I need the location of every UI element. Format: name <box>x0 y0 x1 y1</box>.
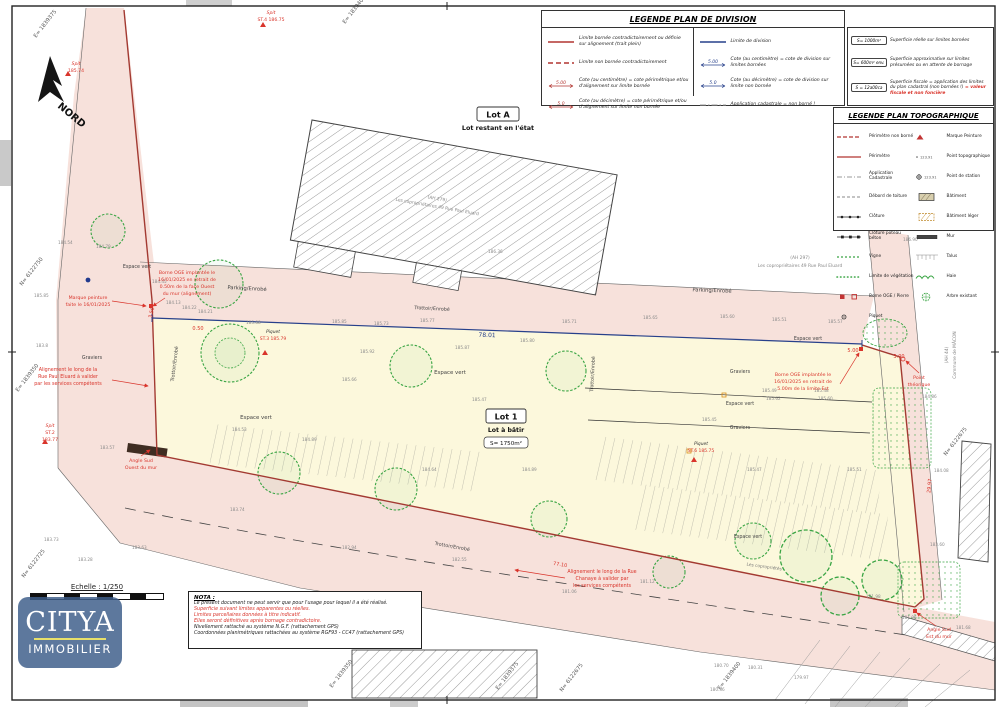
spot-elevation: 183.73 <box>44 537 59 542</box>
map-label: Angle Sud <box>129 458 153 464</box>
t-arbre-symbol-icon <box>914 287 944 306</box>
legend-entry: Limite non bornée contradictoirement <box>546 53 689 72</box>
map-label: Piquet <box>266 329 280 335</box>
lot-1-label-group: Lot 1 Lot à bâtir S= 1750m² <box>484 409 528 448</box>
scan-blob <box>186 0 232 6</box>
legend-entry: Vigne <box>836 247 914 266</box>
superficie-label: Superficie réelle sur limites bornées <box>890 38 969 43</box>
spot-elevation: 185.45 <box>702 417 717 422</box>
map-label: 0.50m de la face Ouest <box>160 284 215 290</box>
borne-marker <box>859 347 863 351</box>
map-label: Spit <box>46 423 55 429</box>
lot-a-subtitle: Lot restant en l'état <box>462 124 534 132</box>
lot-1-area: S= 1750m² <box>490 440 522 447</box>
map-label: Espace vert <box>434 370 466 376</box>
svg-text:5.00: 5.00 <box>707 59 717 65</box>
spot-elevation: 179.97 <box>794 675 809 680</box>
nota-panel: NOTA : Le présent document ne peut servi… <box>188 591 422 649</box>
map-label: (AH 44) <box>944 346 950 363</box>
superficie-entry: S= 1000m²Superficie réelle sur limites b… <box>851 36 990 45</box>
citya-logo-rule <box>34 638 106 640</box>
map-label: Espace vert <box>123 264 151 270</box>
spot-elevation: 185.73 <box>374 321 389 326</box>
legend-entry-label: Point de station <box>947 174 981 179</box>
superficie-entry: S = 12a00caSuperficie fiscale = applicat… <box>851 80 990 96</box>
t-borne-symbol-icon <box>836 287 866 306</box>
legend-entry-label: Application Cadastrale <box>869 171 914 181</box>
north-arrow-icon <box>38 56 64 102</box>
legend-entry: Périmètre <box>836 147 914 166</box>
grid-coordinate-label: N= 6122675 <box>559 663 585 694</box>
svg-text:123.91: 123.91 <box>924 175 937 179</box>
t-mur-symbol-icon <box>914 227 944 246</box>
spot-elevation: 184.22 <box>182 305 197 310</box>
legend-superficie-body: S= 1000m²Superficie réelle sur limites b… <box>848 28 993 104</box>
spot-elevation: 183.28 <box>78 557 93 562</box>
legend-entry: Limite de division <box>698 32 841 51</box>
spot-elevation: 184.13 <box>166 300 181 305</box>
legend-entry-label: Vigne <box>869 254 881 259</box>
legend-entry: 5.00Cote (au centimètre) = cote périmétr… <box>546 74 689 93</box>
angle-marker <box>913 609 917 613</box>
svg-text:5.0: 5.0 <box>709 80 716 86</box>
grid-coordinate-label: N= 6122725 <box>21 549 47 580</box>
spot-elevation: 185.51 <box>847 467 862 472</box>
cote-blue-symbol-icon: 5.0 <box>698 74 728 93</box>
map-label: par les services compétents <box>34 380 102 387</box>
tree <box>780 530 832 582</box>
legend-entry: Débord de toiture <box>836 187 914 206</box>
tree <box>546 351 586 391</box>
map-label: Espace vert <box>794 336 822 342</box>
spot-elevation: 180.70 <box>714 663 729 668</box>
legend-entry: Clôture poteau béton <box>836 227 914 246</box>
scale-label: Echelle : 1/250 <box>30 583 164 591</box>
spot-elevation: 185.92 <box>360 349 375 354</box>
legend-entry: 5.00Cote (au centimètre) = cote de divis… <box>698 53 841 72</box>
map-label: Graviers <box>730 425 751 431</box>
superficie-box: S= 1000m² <box>851 36 887 45</box>
citya-logo-name: CITYA <box>25 609 115 636</box>
map-label: 16/01/2025 en retrait de <box>158 277 216 283</box>
legend-entry: Arbre existant <box>914 287 992 306</box>
legend-entry-label: Piquet <box>869 314 882 319</box>
spot-elevation: 185.80 <box>520 338 535 343</box>
station-dot <box>86 278 91 283</box>
spot-elevation: 184.79 <box>96 244 111 249</box>
t-perim-nb-symbol-icon <box>836 127 866 146</box>
cote-red-symbol-icon: 5.00 <box>546 74 576 93</box>
tree-inner <box>215 338 245 368</box>
map-label: Point <box>913 375 925 381</box>
lot-a-label-group: Lot A Lot restant en l'état <box>462 107 534 132</box>
legend-entry-label: Débord de toiture <box>869 194 907 199</box>
legend-entry-label: Haie <box>947 274 957 279</box>
superficie-label: Superficie fiscale = application des lim… <box>890 80 990 96</box>
legend-entry-label: Limite bornée contradictoirement ou défi… <box>579 36 689 47</box>
map-label: Rue Paul Eluard à valider <box>38 373 98 380</box>
map-label: Chanaye à valider par <box>576 575 629 582</box>
tree <box>653 556 685 588</box>
spot-elevation: 184.08 <box>934 468 949 473</box>
spot-elevation: 185.88 <box>246 320 261 325</box>
legend-entry: Limite bornée contradictoirement ou défi… <box>546 32 689 51</box>
spot-elevation: 183.60 <box>930 542 945 547</box>
t-bat-symbol-icon <box>914 187 944 206</box>
map-label: ST.6 185.75 <box>688 448 715 454</box>
spot-elevation: 184.21 <box>198 309 213 314</box>
legend-entry-label: Bâtiment <box>947 194 967 199</box>
map-label: 185.74 <box>68 68 84 74</box>
legend-entry-label: Cote (au centimètre) = cote de division … <box>731 57 841 68</box>
map-label: Piquet <box>694 441 708 447</box>
map-label: Spit <box>267 10 276 16</box>
map-label: Borne OGE implantée le <box>775 371 831 378</box>
spot-elevation: 184.86 <box>922 394 937 399</box>
building-right-edge <box>958 441 991 562</box>
spot-elevation: 185.47 <box>472 397 487 402</box>
superficie-box: S = 12a00ca <box>851 83 887 92</box>
superficie-label: Superficie approximative sur limites pré… <box>890 57 990 68</box>
legend-entry-label: Clôture <box>869 214 885 219</box>
spot-elevation: 185.77 <box>420 318 435 323</box>
spot-elevation: 184.89 <box>302 437 317 442</box>
spot-elevation: 181.98 <box>866 594 881 599</box>
spot-elevation: 180.31 <box>748 665 763 670</box>
grid-coordinate-label: E= 1839375 <box>33 9 58 39</box>
legend-entry-label: Cote (au centimètre) = cote périmétrique… <box>579 78 689 89</box>
spot-elevation: 184.53 <box>232 427 247 432</box>
green-area <box>898 562 960 618</box>
map-label: 5.00 <box>847 348 858 354</box>
t-vigne-symbol-icon <box>836 247 866 266</box>
tree <box>91 214 125 248</box>
map-label: du mur (alignement) <box>163 291 212 297</box>
cote-blue-symbol-icon: 5.00 <box>698 53 728 72</box>
spot-elevation: 185.85 <box>332 319 347 324</box>
green-area <box>873 388 931 468</box>
grid-coordinate-label: E= 1839350 <box>329 659 355 690</box>
t-perim-symbol-icon <box>836 147 866 166</box>
nota-lines: Le présent document ne peut servir que p… <box>194 601 416 637</box>
map-label: 78.01 <box>478 332 496 340</box>
t-clot-symbol-icon <box>836 207 866 226</box>
legend-entry: Piquet <box>836 307 914 326</box>
spot-elevation: 185.51 <box>772 317 787 322</box>
superficie-entry: S= 600m² env.Superficie approximative su… <box>851 57 990 68</box>
legend-entry: 123.91Point topographique <box>914 147 992 166</box>
spot-elevation: 185.60 <box>720 314 735 319</box>
map-label: 0.50 <box>192 326 203 332</box>
legend-entry: Bâtiment léger <box>914 207 992 226</box>
spot-elevation: 184.64 <box>422 467 437 472</box>
grid-coordinate-label: E= 1839400 <box>342 0 368 25</box>
t-pstation-symbol-icon: 123.91 <box>914 167 944 186</box>
legend-entry-label: Mur <box>947 234 955 239</box>
svg-text:5.0: 5.0 <box>557 101 564 107</box>
grid-coordinate-label: E= 1839350 <box>15 363 41 394</box>
legend-entry-label: Limite non bornée contradictoirement <box>579 60 667 65</box>
map-label: Marque peinture <box>69 295 108 301</box>
legend-entry-label: Marque Peinture <box>947 134 982 139</box>
legend-entry: 5.0Cote (au décimètre) = cote périmétriq… <box>546 95 689 114</box>
legend-entry-label: Arbre existant <box>947 294 977 299</box>
spot-elevation: 185.65 <box>643 315 658 320</box>
lot-a-title: Lot A <box>486 111 510 120</box>
legend-entry: Haie <box>914 267 992 286</box>
map-label: Graviers <box>730 369 751 375</box>
t-toit-symbol-icon <box>836 187 866 206</box>
spot-elevation: 181.96 <box>902 615 917 620</box>
t-talus-symbol-icon <box>914 247 944 266</box>
spot-elevation: 184.89 <box>522 467 537 472</box>
map-label: 183.77 <box>42 437 58 443</box>
plan-page: Lot A Lot restant en l'état Lot 1 Lot à … <box>0 0 1000 707</box>
map-label: ST.2 <box>45 430 55 436</box>
map-label: Espace vert <box>734 534 762 540</box>
spot-elevation: 184.54 <box>58 240 73 245</box>
t-haie-symbol-icon <box>914 267 944 286</box>
legend-superficie-panel: S= 1000m²Superficie réelle sur limites b… <box>847 27 994 106</box>
map-label: Espace vert <box>240 415 272 421</box>
map-label: Commune de MÂCON <box>951 331 958 378</box>
legend-division-col1: Limite bornée contradictoirement ou défi… <box>542 28 693 96</box>
spot-elevation: 185.66 <box>342 377 357 382</box>
legend-entry-label: Limite de division <box>731 39 771 44</box>
map-label: Est du mur <box>926 634 952 640</box>
tree <box>195 260 243 308</box>
map-label: Les copropriétaires 49 Rue Paul Eluard <box>758 262 843 269</box>
grid-coordinate-label: N= 6122750 <box>19 256 45 287</box>
legend-entry: Application cadastrale = non borné ! <box>698 95 841 114</box>
t-veg-symbol-icon <box>836 267 866 286</box>
map-label: Angle Sud <box>927 627 951 633</box>
spot-elevation: 181.12 <box>640 579 655 584</box>
legend-entry-label: Talus <box>947 254 958 259</box>
spot-elevation: 185.87 <box>455 345 470 350</box>
map-label: Espace vert <box>726 401 754 407</box>
lot-1-title: Lot 1 <box>495 413 518 422</box>
scan-blob <box>390 701 418 707</box>
lot-1-subtitle: Lot à bâtir <box>488 426 525 434</box>
map-label: (AH 297) <box>790 255 810 261</box>
legend-entry-label: Cote (au décimètre) = cote périmétrique … <box>579 99 689 110</box>
tree <box>258 452 300 494</box>
spot-elevation: 182.55 <box>452 557 467 562</box>
legend-entry: Clôture <box>836 207 914 226</box>
legend-entry-label: Bâtiment léger <box>947 214 979 219</box>
spot-elevation: 185.60 <box>818 396 833 401</box>
legend-topo-col-right: Marque Peinture123.91Point topographique… <box>914 126 992 226</box>
superficie-box: S= 600m² env. <box>851 58 887 67</box>
legend-entry-label: Limite de végétation <box>869 274 914 279</box>
spot-elevation: 183.74 <box>230 507 245 512</box>
spot-elevation: 185.49 <box>762 388 777 393</box>
tree <box>821 577 859 615</box>
t-ptopo-symbol-icon: 123.91 <box>914 147 944 166</box>
spot-elevation: 183.63 <box>132 545 147 550</box>
spot-elevation: 186.36 <box>488 249 503 254</box>
red-solid-symbol-icon <box>546 32 576 51</box>
legend-entry: Bâtiment <box>914 187 992 206</box>
spot-elevation: 183.57 <box>100 445 115 450</box>
spot-elevation: 183.8 <box>36 343 48 348</box>
map-label: Alignement le long de la <box>39 367 98 373</box>
legend-entry: Périmètre non borné <box>836 127 914 146</box>
legend-entry: Mur <box>914 227 992 246</box>
spot-elevation: 185.47 <box>747 467 762 472</box>
legend-entry-label: Application cadastrale = non borné ! <box>731 102 816 107</box>
tree <box>375 468 417 510</box>
legend-entry-label: Point topographique <box>947 154 991 159</box>
svg-text:5.00: 5.00 <box>556 80 566 86</box>
spot-elevation: 181.68 <box>956 625 971 630</box>
spot-elevation: 182.94 <box>342 545 357 550</box>
map-label: Ouest du mur <box>125 465 157 471</box>
map-label: Borne OGE implantée le <box>159 269 215 276</box>
scan-blob <box>180 700 308 707</box>
map-label: faite le 16/01/2025 <box>66 302 111 308</box>
map-label: 16/01/2025 en retrait de <box>774 379 832 385</box>
spot-elevation: 185.71 <box>562 319 577 324</box>
tree <box>735 523 771 559</box>
legend-topo-title: LEGENDE PLAN TOPOGRAPHIQUE <box>834 108 993 123</box>
map-label: Parking/Enrobé <box>692 286 731 294</box>
legend-division-panel: LEGENDE PLAN DE DIVISION Limite bornée c… <box>541 10 845 106</box>
map-label: Spit <box>72 61 81 67</box>
legend-entry: Talus <box>914 247 992 266</box>
map-label: Alignement le long de la Rue <box>567 569 636 575</box>
legend-entry: 5.0Cote (au décimètre) = cote de divisio… <box>698 74 841 93</box>
svg-text:123.91: 123.91 <box>920 155 933 159</box>
map-label: ST.4 186.75 <box>257 17 284 23</box>
citya-logo: CITYA IMMOBILIER <box>18 597 122 668</box>
legend-division-col2: Limite de division5.00Cote (au centimètr… <box>693 28 845 96</box>
nota-line: Coordonnées planimétriques rattachées au… <box>194 631 416 637</box>
legend-division-title: LEGENDE PLAN DE DIVISION <box>542 11 844 27</box>
legend-entry-label: Périmètre <box>869 154 890 159</box>
legend-entry: Limite de végétation <box>836 267 914 286</box>
map-label: ST.3 185.79 <box>260 336 287 342</box>
superficie-label-red: = valeur fiscale et non foncière <box>890 85 986 95</box>
map-label: théorique <box>908 381 931 388</box>
t-cad-symbol-icon <box>836 167 866 186</box>
gray-dashdot-symbol-icon <box>698 95 728 114</box>
legend-entry-label: Cote (au décimètre) = cote de division s… <box>731 78 841 89</box>
t-piquet-symbol-icon <box>836 307 866 326</box>
red-dash-symbol-icon <box>546 53 576 72</box>
legend-entry: Marque Peinture <box>914 127 992 146</box>
t-bat-leger-symbol-icon <box>914 207 944 226</box>
cote-red-symbol-icon: 5.0 <box>546 95 576 114</box>
legend-entry: Application Cadastrale <box>836 167 914 186</box>
legend-entry-label: Périmètre non borné <box>869 134 913 139</box>
tree <box>390 345 432 387</box>
t-marque-symbol-icon <box>914 127 944 146</box>
legend-topo-panel: LEGENDE PLAN TOPOGRAPHIQUE Périmètre non… <box>833 107 994 231</box>
legend-entry-label: Borne OGE / Pierre <box>869 294 909 299</box>
legend-entry: Borne OGE / Pierre <box>836 287 914 306</box>
map-label: les services compétents <box>573 582 632 589</box>
spot-elevation: 181.06 <box>562 589 577 594</box>
legend-topo-col-left: Périmètre non bornéPérimètreApplication … <box>836 126 914 226</box>
spot-elevation: 185.85 <box>34 293 49 298</box>
blue-solid-symbol-icon <box>698 32 728 51</box>
spot-elevation: 185.62 <box>766 396 781 401</box>
map-label: 5.00m de la limite Est <box>777 386 829 392</box>
legend-entry-label: Clôture poteau béton <box>869 231 914 241</box>
map-label: 29.97 <box>926 478 933 493</box>
map-label: Graviers <box>82 355 103 361</box>
citya-logo-sub: IMMOBILIER <box>28 642 112 656</box>
legend-entry: 123.91Point de station <box>914 167 992 186</box>
t-clot-pb-symbol-icon <box>836 227 866 246</box>
scan-blob <box>0 140 11 186</box>
map-label: 3.00 <box>893 354 904 360</box>
